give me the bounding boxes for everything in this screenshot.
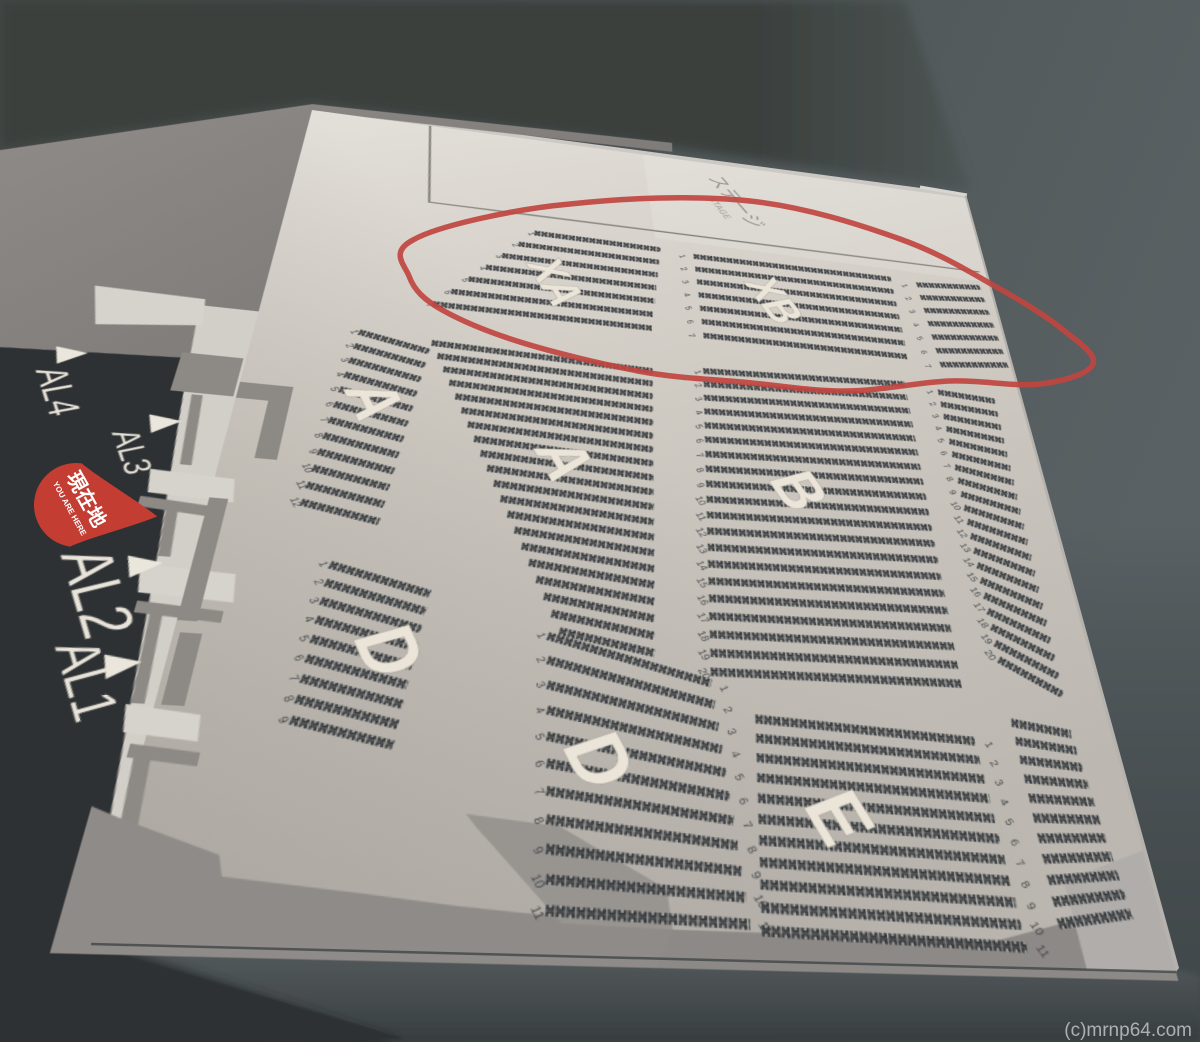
svg-text:(c)mrnp64.com: (c)mrnp64.com [1064, 1020, 1192, 1041]
